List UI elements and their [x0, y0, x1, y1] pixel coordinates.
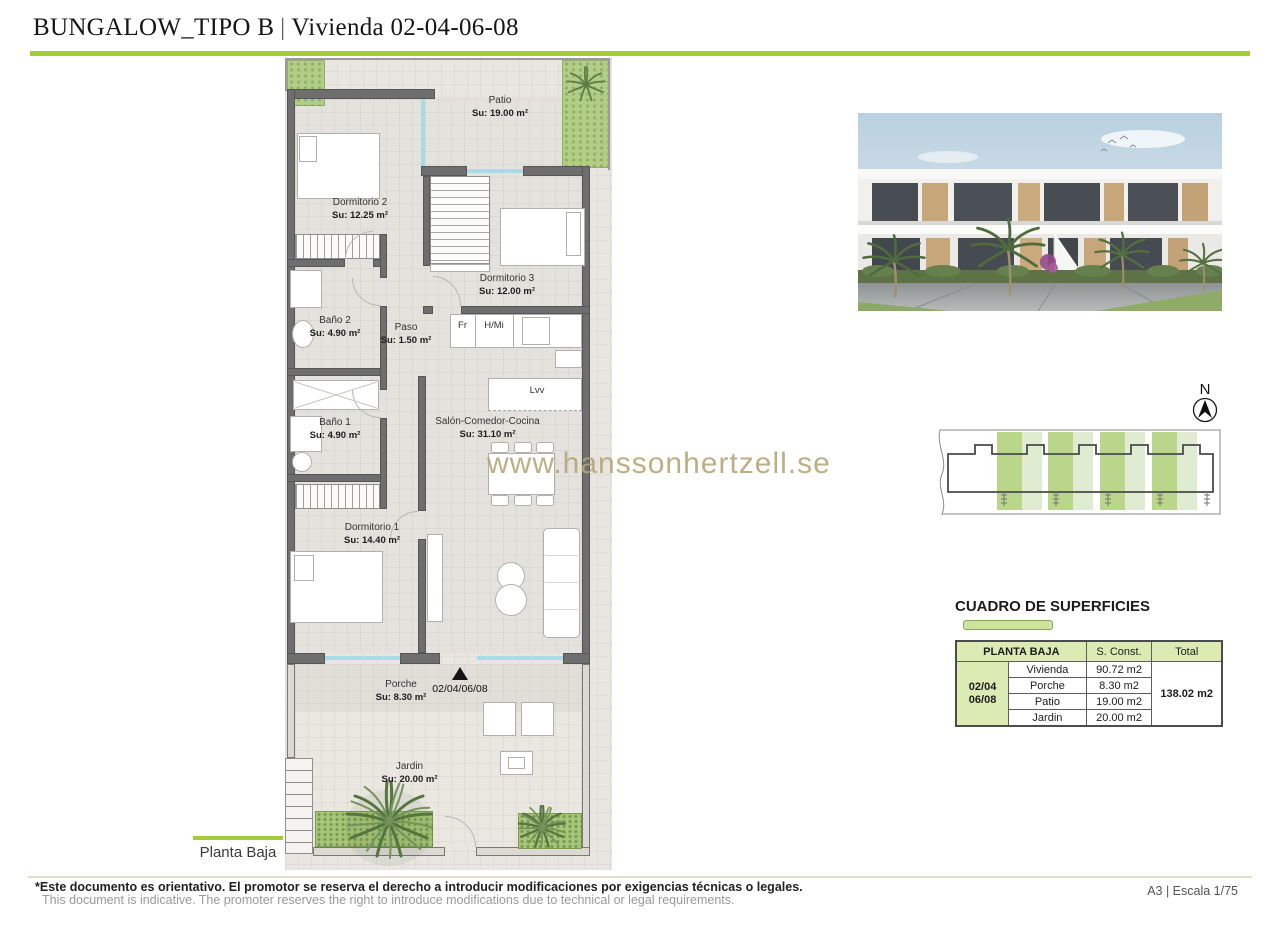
vanity-bano2: [290, 270, 322, 308]
wall: [287, 368, 385, 376]
dorm3-window: [467, 169, 523, 173]
row-value: 19.00 m2: [1086, 694, 1152, 710]
room-label-bano1: Baño 1Su: 4.90 m²: [297, 417, 373, 441]
garden-table-top: [508, 757, 525, 769]
entry-units-label: 02/04/06/08: [425, 683, 495, 695]
col-header-total: Total: [1152, 641, 1222, 662]
wall: [287, 89, 435, 99]
wall: [380, 418, 387, 509]
wall: [461, 306, 590, 314]
wall: [418, 376, 426, 511]
patio-fence-left: [285, 58, 287, 91]
room-label-patio: PatioSu: 19.00 m²: [465, 95, 535, 119]
north-label: N: [1192, 381, 1218, 398]
room-label-dormitorio2: Dormitorio 2Su: 12.25 m²: [310, 197, 410, 221]
page-title: BUNGALOW_TIPO B|Vivienda 02-04-06-08: [33, 14, 519, 42]
chair: [514, 495, 532, 506]
total-cell: 138.02 m2: [1152, 662, 1222, 727]
pillow: [566, 212, 581, 256]
sofa-cushion-line: [545, 609, 578, 610]
wall: [380, 306, 387, 390]
areas-table-title: CUADRO DE SUPERFICIES: [955, 598, 1150, 615]
watermark: www.hanssonhertzell.se: [487, 447, 831, 481]
patio-fence-top: [285, 58, 610, 60]
counter-divider: [513, 314, 514, 348]
label-dishwasher: Lvv: [517, 385, 557, 396]
building-photo: [858, 113, 1222, 311]
room-label-dormitorio1: Dormitorio 1Su: 14.40 m²: [322, 522, 422, 546]
dorm1-window: [325, 656, 400, 660]
chair: [536, 495, 554, 506]
footer-rule: [28, 876, 1252, 878]
staircase: [430, 176, 490, 264]
wall: [287, 474, 385, 482]
col-header-s-const: S. Const.: [1086, 641, 1152, 662]
disclaimer-en: This document is indicative. The promote…: [42, 893, 734, 907]
garden-fence-bottom-left: [313, 847, 445, 856]
col-header-planta-baja: PLANTA BAJA: [956, 641, 1086, 662]
site-plan: [930, 418, 1230, 522]
wall: [287, 259, 345, 267]
page-title-main: BUNGALOW_TIPO B: [33, 14, 274, 41]
exterior-staircase: [285, 758, 313, 854]
table-row: 02/04 06/08 Vivienda 90.72 m2 138.02 m2: [956, 662, 1222, 678]
plan-sheet-page: BUNGALOW_TIPO B|Vivienda 02-04-06-08: [0, 0, 1280, 933]
garden-fence-left: [287, 664, 295, 758]
wall: [423, 176, 430, 266]
row-label: Vivienda: [1009, 662, 1087, 678]
wall: [421, 166, 467, 176]
row-value: 8.30 m2: [1086, 678, 1152, 694]
chair: [491, 495, 509, 506]
room-label-paso: PasoSu: 1.50 m²: [371, 322, 441, 346]
pillow: [294, 555, 314, 581]
sheet-scale-info: A3 | Escala 1/75: [1040, 884, 1238, 898]
sofa-cushion-line: [545, 555, 578, 556]
kitchen-appliance: [555, 350, 582, 368]
room-label-bano2: Baño 2Su: 4.90 m²: [297, 315, 373, 339]
unit-cell: 02/04 06/08: [956, 662, 1009, 727]
room-label-jardin: JardinSu: 20.00 m²: [362, 761, 457, 785]
wall: [400, 653, 440, 664]
row-label: Porche: [1009, 678, 1087, 694]
room-label-salon: Salón-Comedor-CocinaSu: 31.10 m²: [415, 416, 560, 440]
label-fridge: Fr: [450, 320, 475, 331]
wall: [287, 653, 325, 664]
sunbed: [483, 702, 516, 736]
row-label: Jardin: [1009, 710, 1087, 727]
wall: [423, 306, 433, 314]
room-label-dormitorio3: Dormitorio 3Su: 12.00 m²: [457, 273, 557, 297]
title-underline: [30, 51, 1250, 56]
title-divider: |: [274, 15, 291, 41]
patio-planter-right: [562, 60, 610, 168]
garden-hedge-left: [315, 811, 433, 847]
patio-fence-right: [608, 58, 610, 170]
wall: [418, 539, 426, 653]
areas-table: PLANTA BAJA S. Const. Total 02/04 06/08 …: [955, 640, 1223, 727]
wardrobe-dorm1: [295, 484, 380, 509]
stair-landing: [430, 264, 490, 272]
sofa-cushion-line: [545, 582, 578, 583]
sofa: [543, 528, 580, 638]
planta-baja-label: Planta Baja: [196, 844, 280, 861]
toilet-bano1: [292, 452, 312, 472]
wall: [563, 653, 590, 664]
sideboard: [427, 534, 443, 622]
table-title-bar: [963, 620, 1053, 630]
kitchen-sink: [522, 317, 550, 345]
row-label: Patio: [1009, 694, 1087, 710]
sunbed: [521, 702, 554, 736]
row-value: 90.72 m2: [1086, 662, 1152, 678]
patio-glass-door: [421, 99, 425, 166]
pillow: [299, 136, 317, 162]
row-value: 20.00 m2: [1086, 710, 1152, 727]
garden-hedge-right: [518, 813, 582, 849]
disclaimer-es: *Este documento es orientativo. El promo…: [35, 880, 803, 894]
label-oven-micro: H/Mi: [475, 320, 513, 331]
entry-arrow-icon: [452, 667, 468, 680]
armchair: [495, 584, 527, 616]
living-slider-window: [477, 656, 563, 660]
garden-fence-right: [582, 664, 590, 854]
wall: [523, 166, 590, 176]
areas-table-block: CUADRO DE SUPERFICIES PLANTA BAJA S. Con…: [955, 598, 1223, 727]
planta-baja-line: [193, 836, 283, 840]
wall: [380, 234, 387, 278]
page-title-sub: Vivienda 02-04-06-08: [291, 14, 518, 41]
